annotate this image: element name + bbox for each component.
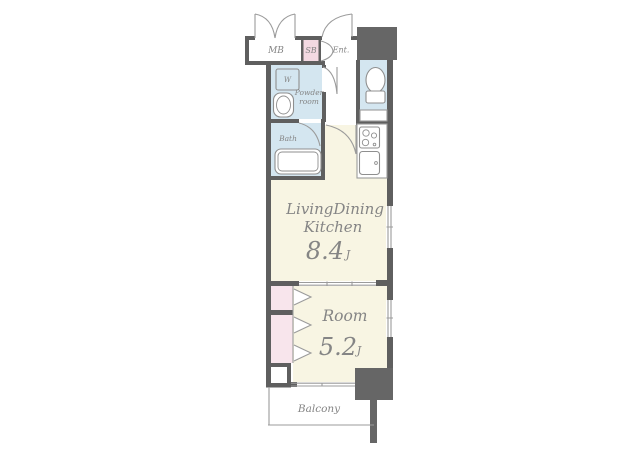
entrance-label: Ent. bbox=[332, 46, 350, 55]
closet-floor bbox=[271, 286, 293, 363]
window-right-upper bbox=[386, 206, 394, 248]
ldk-unit-label: J bbox=[344, 248, 351, 261]
balcony-label: Balcony bbox=[297, 403, 341, 415]
entrance-door bbox=[322, 14, 352, 37]
bottom-pillar bbox=[355, 368, 393, 400]
ldk-size-label: 8.4 bbox=[306, 237, 344, 265]
window-balcony-door bbox=[291, 383, 355, 386]
room-unit-label: J bbox=[355, 344, 362, 357]
basin-icon bbox=[274, 93, 294, 117]
powder-room-label-line2: room bbox=[299, 97, 319, 106]
washer-label: W bbox=[284, 76, 292, 84]
sb-label: SB bbox=[305, 46, 316, 55]
bathtub-icon bbox=[275, 149, 321, 174]
bath-label: Bath bbox=[278, 134, 297, 143]
ldk-label-line2: Kitchen bbox=[303, 218, 363, 236]
floor-plan-page: MB SB Ent. W Powder room Bath LivingDini… bbox=[0, 0, 640, 452]
room-size-label: 5.2 bbox=[319, 333, 357, 361]
sliding-partition-ldk-room bbox=[299, 282, 376, 287]
sink-icon bbox=[360, 152, 380, 175]
niche-floor bbox=[271, 367, 287, 383]
floor-plan: MB SB Ent. W Powder room Bath LivingDini… bbox=[0, 0, 640, 452]
mb-double-door bbox=[255, 14, 295, 38]
pillar-extension bbox=[370, 400, 377, 443]
closet-folding-doors bbox=[293, 286, 311, 363]
stove-icon bbox=[360, 127, 380, 148]
mb-label: MB bbox=[267, 46, 284, 56]
room-label: Room bbox=[321, 307, 367, 325]
powder-room-label-line1: Powder bbox=[294, 88, 324, 97]
window-right-lower bbox=[386, 300, 394, 337]
top-pillar bbox=[357, 27, 397, 60]
ldk-label-line1: LivingDining bbox=[285, 200, 384, 218]
